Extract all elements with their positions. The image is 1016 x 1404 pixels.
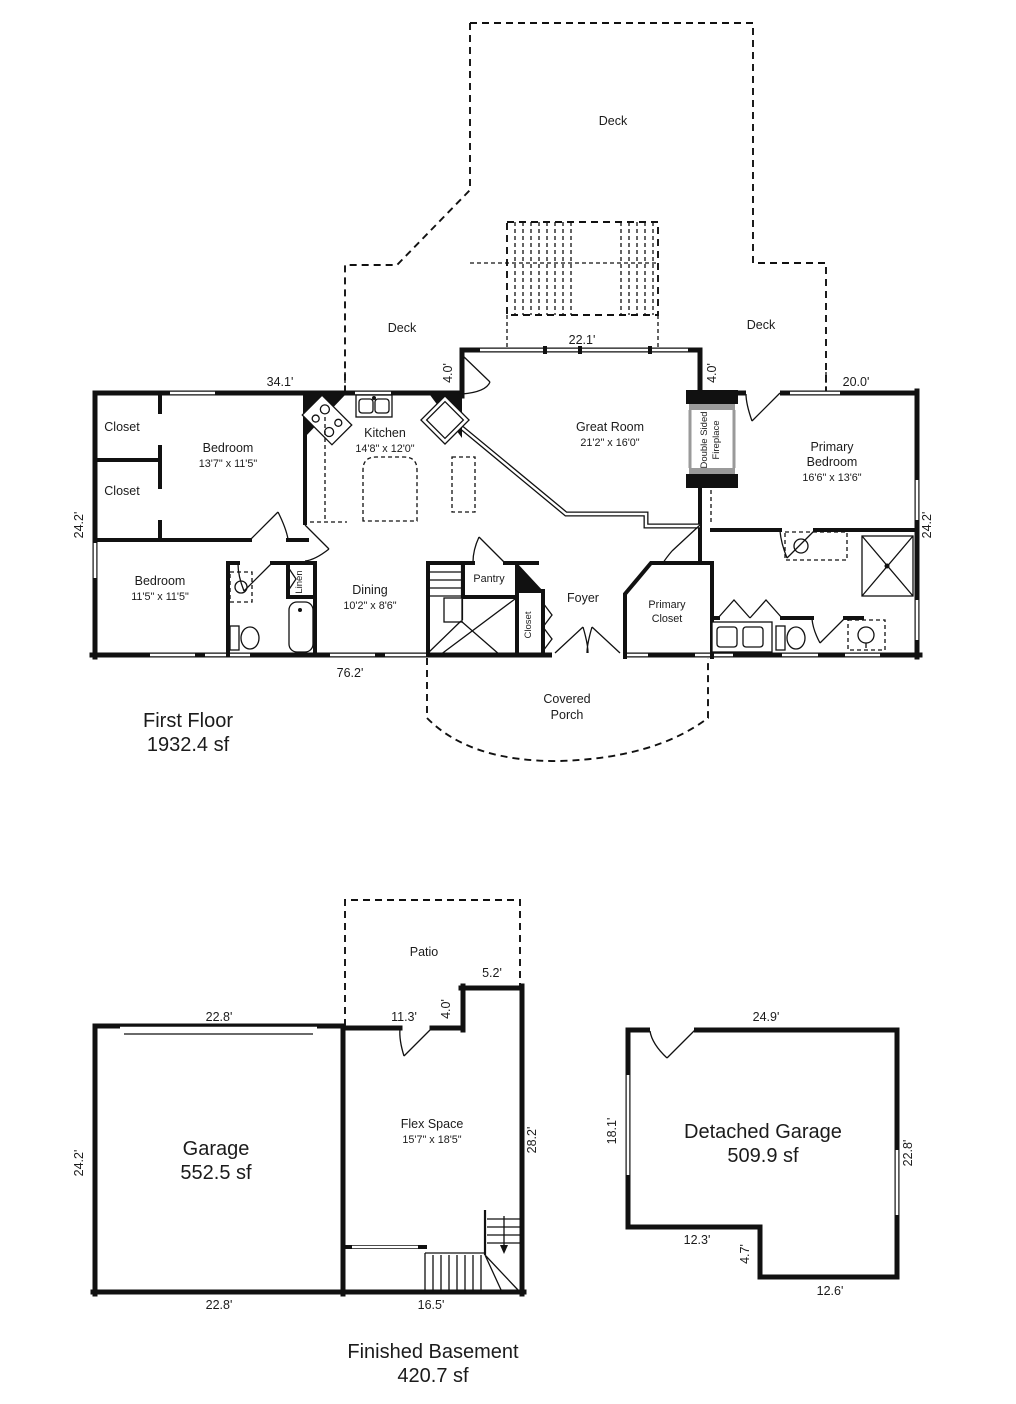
patio-label: Patio <box>410 945 439 959</box>
dim-11-3: 11.3' <box>391 1010 417 1024</box>
toilet-bowl <box>241 627 259 649</box>
deck-top-label: Deck <box>599 114 628 128</box>
dining-label: Dining <box>352 583 387 597</box>
porch-label-1: Covered <box>543 692 590 706</box>
deck-left-label: Deck <box>388 321 417 335</box>
fireplace-label-1: Double Sided <box>699 411 710 468</box>
floor-plan-drawing: Deck Deck Deck 22.1' 34.1' 4.0' 4.0' 20.… <box>0 0 1016 1404</box>
foyer-label: Foyer <box>567 591 599 605</box>
porch-label-2: Porch <box>551 708 584 722</box>
dim-20-0: 20.0' <box>843 375 870 389</box>
background <box>0 0 1016 1404</box>
fireplace-cap-top <box>686 390 738 404</box>
first-floor-title: First Floor <box>143 710 233 732</box>
fireplace-molding-top <box>689 404 735 410</box>
first-floor-area: 1932.4 sf <box>147 734 230 756</box>
dim-76-2: 76.2' <box>337 666 364 680</box>
flex-space-label: Flex Space <box>401 1117 464 1131</box>
primary-bedroom-size: 16'6" x 13'6" <box>802 472 861 484</box>
tub-drain <box>298 608 302 612</box>
dim-16-5: 16.5' <box>418 1298 445 1312</box>
dim-24-9: 24.9' <box>753 1010 780 1024</box>
foyer-closet-label: Closet <box>523 611 534 638</box>
primary-closet-label-1: Primary <box>648 599 686 611</box>
flex-space-size: 15'7" x 18'5" <box>402 1134 461 1146</box>
floor-plan-page: Deck Deck Deck 22.1' 34.1' 4.0' 4.0' 20.… <box>0 0 1016 1404</box>
sink-icon <box>356 395 392 417</box>
dim-18-1: 18.1' <box>605 1118 619 1145</box>
dim-24-2-right: 24.2' <box>920 512 934 539</box>
stair-newel <box>444 598 462 622</box>
dim-28-2: 28.2' <box>525 1127 539 1154</box>
primary-bedroom-label-2: Bedroom <box>807 455 858 469</box>
toilet-tank-primary <box>776 626 785 650</box>
dim-24-2-left: 24.2' <box>72 512 86 539</box>
dim-24-2-basement: 24.2' <box>72 1150 86 1177</box>
detached-garage-label: Detached Garage <box>684 1121 842 1143</box>
kitchen-label: Kitchen <box>364 426 406 440</box>
fireplace-cap-bottom <box>686 474 738 488</box>
dim-12-3: 12.3' <box>684 1233 711 1247</box>
garage-label: Garage <box>183 1138 250 1160</box>
deck-right-label: Deck <box>747 318 776 332</box>
closet-lower-label: Closet <box>104 484 140 498</box>
dim-22-8-detached: 22.8' <box>901 1140 915 1167</box>
dining-size: 10'2" x 8'6" <box>343 600 396 612</box>
detached-garage-area: 509.9 sf <box>727 1145 799 1167</box>
bedroom1-size: 13'7" x 11'5" <box>199 458 258 470</box>
shower-icon <box>862 536 913 596</box>
dim-12-6: 12.6' <box>817 1284 844 1298</box>
dim-4-0-right: 4.0' <box>705 363 719 383</box>
bedroom2-label: Bedroom <box>135 574 186 588</box>
bedroom2-size: 11'5" x 11'5" <box>131 591 189 603</box>
kitchen-size: 14'8" x 12'0" <box>355 443 414 455</box>
dim-4-0-left: 4.0' <box>441 363 455 383</box>
toilet-bowl-primary <box>787 627 805 649</box>
dim-5-2: 5.2' <box>482 966 502 980</box>
primary-bedroom-label-1: Primary <box>810 440 854 454</box>
fireplace-molding-bottom <box>689 468 735 474</box>
dim-22-8-bottom: 22.8' <box>206 1298 233 1312</box>
dim-22-8-top: 22.8' <box>206 1010 233 1024</box>
closet-upper-label: Closet <box>104 420 140 434</box>
great-room-label: Great Room <box>576 420 644 434</box>
dim-34-1: 34.1' <box>267 375 294 389</box>
dim-22-1: 22.1' <box>569 333 596 347</box>
fireplace-label-2: Fireplace <box>711 420 722 459</box>
basement-title: Finished Basement <box>347 1341 519 1363</box>
dim-4-0-basement: 4.0' <box>439 999 453 1019</box>
pantry-label: Pantry <box>473 573 505 585</box>
dim-4-7: 4.7' <box>738 1244 752 1264</box>
bedroom1-label: Bedroom <box>203 441 254 455</box>
linen-label: Linen <box>294 570 305 593</box>
basement-area: 420.7 sf <box>397 1365 469 1387</box>
great-room-size: 21'2" x 16'0" <box>580 437 639 449</box>
toilet-tank <box>230 626 239 650</box>
garage-area: 552.5 sf <box>180 1162 252 1184</box>
primary-closet-label-2: Closet <box>652 613 683 625</box>
